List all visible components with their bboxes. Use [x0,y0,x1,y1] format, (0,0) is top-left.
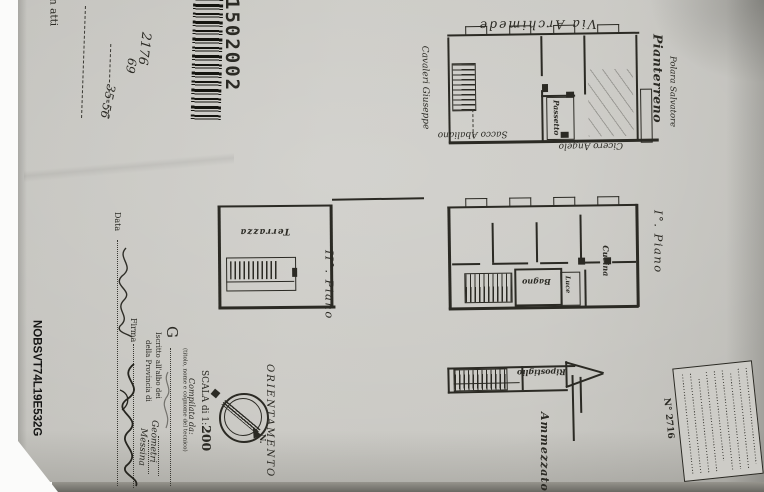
partition-wall [492,223,495,263]
floor-title-mezzanine: Ammezzato [539,412,550,492]
approval-stamp [670,356,764,486]
scale-value: 200 [199,425,214,451]
barcode [191,0,224,120]
door-mark [604,257,611,264]
door-mark [578,258,585,265]
corridor-wall [540,262,568,264]
window-recess [553,25,575,34]
signature-label: Firma [129,318,137,342]
door-mark [292,268,297,277]
first-floor-plan: Bagno Luce Cucina [439,190,671,317]
corridor-wall [452,263,480,265]
north-label: N. [259,434,267,448]
wall-segment [218,205,332,207]
wall-segment [541,90,544,142]
partition-wall [579,215,582,262]
door-mark [561,132,569,138]
wall-segment [635,35,638,141]
wall-segment [447,368,450,394]
corridor-wall [492,262,528,265]
neighbor-label-right: Polara Salvatore [668,56,677,154]
room-label-bagno: Bagno [518,278,554,287]
compiled-by-label: Compilata da: [187,378,195,438]
room-label-ripostiglio: Ripostiglio [513,368,569,377]
handwritten-technician-scribble [160,370,176,432]
floor-title-second: II°. Piano [323,250,335,320]
albo-label: Iscritto all'albo dei [154,332,161,434]
corridor-wall [612,261,636,263]
photo-code: NOBSVT74L19E532G [30,320,42,492]
window-recess [597,24,619,33]
neighbor-label-corner: Cicero Angelo [545,140,637,150]
neighbor-area-hatch [588,69,634,137]
staircase [453,368,507,391]
staircase [464,273,512,304]
staircase [230,261,278,279]
door-mark [542,84,548,92]
neighbor-label-bottom: Sacco Abaliano [431,129,515,139]
room-label-terrazza: Terrazza [236,226,294,236]
in-atti-note: n atti [48,0,59,32]
wall-segment [218,305,335,309]
technician-line-initial: G [164,326,179,348]
handwritten-date [108,246,144,338]
room-label-cucina: Cucina [602,245,611,301]
wall-segment [218,205,222,308]
wall-segment [447,37,450,143]
wall-segment [540,36,543,76]
room-label-luce: Luce [564,276,571,302]
arrow-edge [565,361,604,374]
wall-segment [447,206,451,309]
window-recess [465,26,487,35]
partition-wall [584,270,587,308]
photo-bottom-edge [52,482,764,492]
corridor-wall [584,261,600,263]
room-label-passetto: Passetto [552,100,560,138]
stamp-border [672,360,763,482]
staircase [452,63,477,111]
mezzanine-plan: Ripostiglio [439,348,616,452]
neighbor-label-left: Cavaleri Giuseppe [419,46,429,146]
floor-title-first: I°. Piano [652,210,664,284]
wall-segment [583,36,586,95]
partition-wall [536,222,539,262]
barcode-number: 1502002 [222,0,241,124]
window-recess [509,25,531,34]
wall-segment [635,204,639,307]
floor-title-ground: Pianterreno [651,34,664,136]
handwritten-signature [114,360,152,490]
technician-caption: (titolo, nome e cognome del tecnico) [181,348,187,470]
ground-floor-plan: Via Archimede Passetto Cavaleri Giuseppe… [417,10,685,164]
date-label: Data [113,212,121,238]
scanned-cadastral-plan-photo: n atti 2176 69 35-56 1502002 NOBSVT74L19… [0,0,764,492]
scale-prefix: SCALA di 1: [199,370,209,425]
scale-label: SCALA di 1:200 [199,370,215,456]
door-mark [566,92,574,98]
